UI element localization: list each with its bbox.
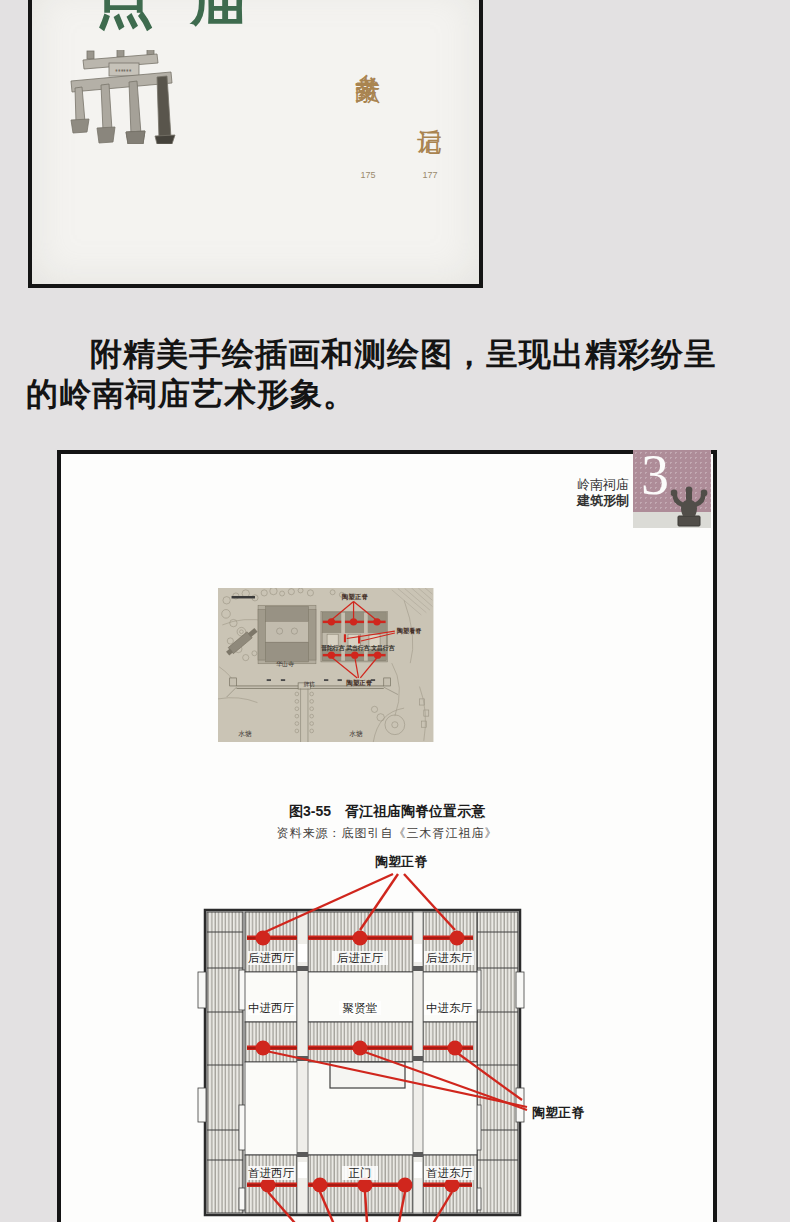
site-plan-figure: 陶塑正脊 陶塑看脊 普陀行宫 武当行宫 文昌行宫 陶塑正脊 华山寺 牌坊 水塘 …: [218, 540, 568, 790]
toc-entry-postscript: 后记: [417, 108, 442, 168]
scale-bar: [232, 596, 255, 598]
room-rear-west: 后进西厅: [248, 952, 295, 964]
site-plan-paper: [218, 588, 434, 742]
room-mid-west: 中进西厅: [248, 1002, 295, 1014]
figure-source: 资料来源：底图引自《三木胥江祖庙》: [61, 825, 713, 842]
room-hall: 聚贤堂: [343, 1002, 378, 1015]
pond-right-label: 水塘: [349, 730, 363, 738]
chapter-series-title: 岭南祠庙: [577, 477, 629, 493]
ridge-bottom-label: 陶塑正脊: [346, 679, 372, 687]
ridge-top-label: 陶塑正脊: [342, 593, 368, 601]
chapter-header: 岭南祠庙 建筑形制: [577, 477, 629, 509]
marketing-description: 附精美手绘插画和测绘图，呈现出精彩纷呈 的岭南祠庙艺术形象。: [26, 334, 771, 414]
huashan-temple-block: [258, 605, 316, 664]
title-char-dian: 点: [96, 0, 154, 30]
toc-page-postscript: 177: [410, 170, 450, 180]
halls-label: 普陀行宫 武当行宫 文昌行宫: [320, 644, 395, 652]
room-mid-east: 中进东厅: [426, 1002, 473, 1014]
svg-text:⋯⋯: ⋯⋯: [115, 66, 131, 75]
pond-left-label: 水塘: [238, 730, 252, 738]
floor-plan-ridge-label-right: 陶塑正脊: [532, 1105, 585, 1120]
room-rear-main: 后进正厅: [337, 952, 384, 964]
figure-caption: 图3-55 胥江祖庙陶脊位置示意: [61, 803, 713, 821]
toc-page-references: 175: [348, 170, 388, 180]
description-line-1: 附精美手绘插画和测绘图，呈现出精彩纷呈: [26, 334, 771, 374]
book-page-toc: 点 庙 ⋯⋯ 参考文献 175 后记 177: [28, 0, 483, 288]
floor-plan-figure: 后进西厅 后进正厅 后进东厅 中进西厅 聚贤堂 中进东厅 首进西厅 正门 首进东…: [195, 850, 600, 1222]
title-char-miao: 庙: [190, 0, 248, 30]
toc-entry-references: 参考文献: [355, 53, 380, 165]
product-detail-image: { "page1": { "title_char_1": "点", "title…: [0, 0, 790, 1222]
ridge-ornament-icon: [665, 483, 713, 529]
room-front-east: 首进东厅: [426, 1167, 473, 1179]
chapter-subtitle: 建筑形制: [577, 493, 629, 509]
ridge-side-label: 陶塑看脊: [397, 627, 422, 635]
room-main-gate: 正门: [349, 1167, 372, 1179]
paifang-archway-photo: ⋯⋯: [57, 50, 185, 144]
description-line-2: 的岭南祠庙艺术形象。: [26, 374, 771, 414]
room-rear-east: 后进东厅: [426, 952, 473, 964]
book-page-drawings: 岭南祠庙 建筑形制 3: [57, 450, 717, 1222]
huashan-temple-label: 华山寺: [276, 660, 294, 667]
room-front-west: 首进西厅: [248, 1167, 295, 1179]
paifang-label: 牌坊: [304, 681, 316, 688]
floor-plan-ridge-label-top: 陶塑正脊: [375, 854, 428, 869]
